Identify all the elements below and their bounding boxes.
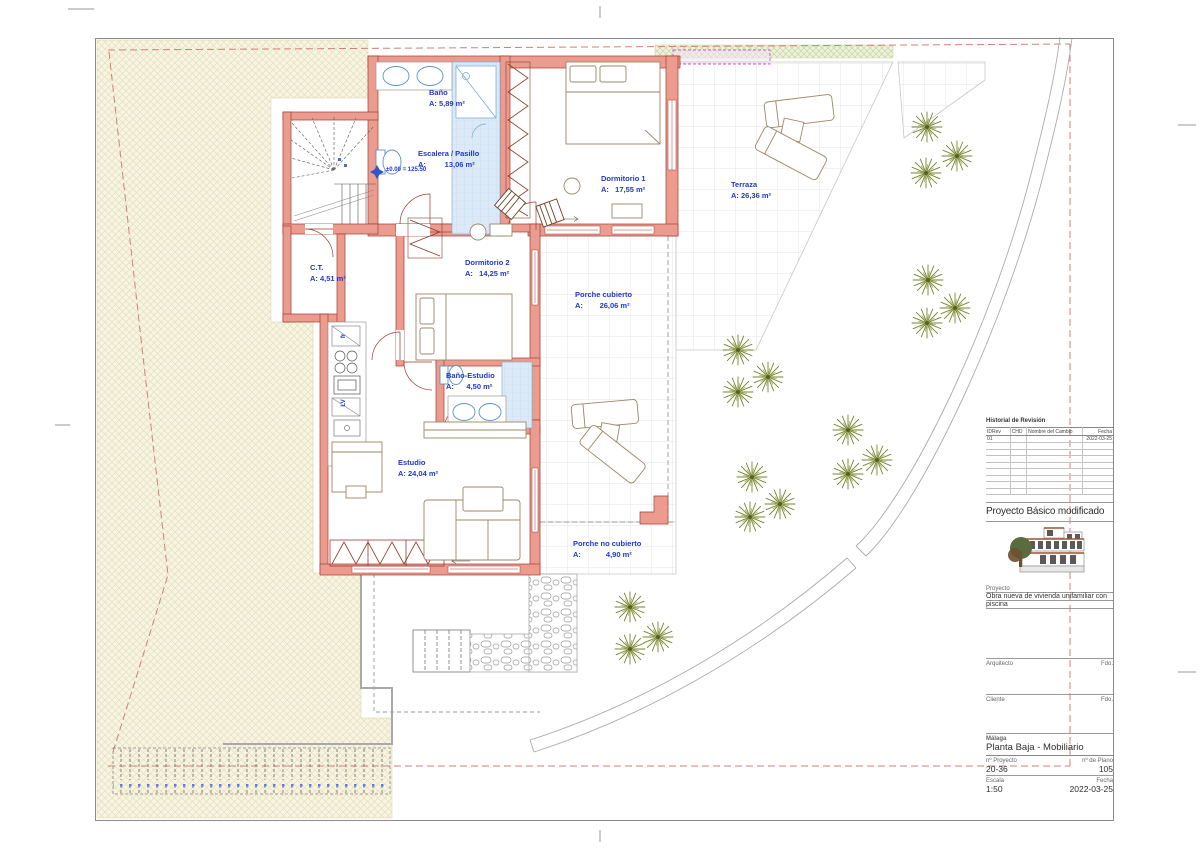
revision-table: IDRev CHD Nombre del Cambio Fecha 01 202… xyxy=(986,427,1113,495)
title-block: Historial de Revisión IDRev CHD Nombre d… xyxy=(986,418,1113,812)
room-label-terraza: TerrazaA: 26,36 m² xyxy=(731,180,771,202)
building-elevation-thumbnail xyxy=(1006,526,1090,580)
architect-label: Arquitecto xyxy=(986,661,1013,667)
date-value: 2022-03-25 xyxy=(1070,784,1113,794)
revision-history-title: Historial de Revisión xyxy=(986,418,1113,424)
room-label-porche-no-cubierto: Porche no cubiertoA: 4,90 m² xyxy=(573,539,641,561)
drawing-sheet: BañoA: 5,89 m² Escalera / PasilloA: 13,0… xyxy=(0,0,1200,849)
client-signature-label: Fdo. xyxy=(1101,697,1113,703)
rev-col-chd: CHD xyxy=(1010,428,1027,436)
scale-value: 1:50 xyxy=(986,784,1003,794)
staircase xyxy=(291,116,376,224)
architect-signature-label: Fdo. xyxy=(1101,661,1113,667)
rev-col-fecha: Fecha xyxy=(1083,428,1114,436)
room-label-dormitorio2: Dormitorio 2A: 14,25 m² xyxy=(465,258,510,280)
project-no: 20-36 xyxy=(986,764,1008,774)
room-label-bano-estudio: Baño-EstudioA: 4,50 m² xyxy=(446,371,495,393)
project-desc-line2: piscina xyxy=(986,601,1113,609)
project-label: Proyecto xyxy=(986,586,1113,593)
room-label-ct: C.T.A: 4,51 m² xyxy=(310,263,346,285)
stone-path xyxy=(470,574,577,672)
project-desc-line1: Obra nueva de vivienda unifamiliar con xyxy=(986,593,1113,601)
garden-steps xyxy=(413,630,470,672)
rev-col-nombre: Nombre del Cambio xyxy=(1027,428,1083,436)
sheet-name: Planta Baja - Mobiliario xyxy=(986,742,1113,756)
room-label-estudio: EstudioA: 24,04 m² xyxy=(398,458,438,480)
room-label-porche-cubierto: Porche cubiertoA: 26,06 m² xyxy=(575,290,632,312)
room-label-escalera: Escalera / PasilloA: 13,06 m² xyxy=(418,149,479,171)
room-label-dormitorio1: Dormitorio 1A: 17,55 m² xyxy=(601,174,646,196)
sheet-name-section: Málaga Planta Baja - Mobiliario nº Proye… xyxy=(986,733,1113,794)
plan-no: 105 xyxy=(1099,764,1113,774)
level-marker-text: ±0.00 = 125.50 xyxy=(386,167,426,173)
dishwasher-label: LV xyxy=(341,397,347,409)
rev-col-idrev: IDRev xyxy=(986,428,1010,436)
fridge-label: fr xyxy=(341,330,347,342)
architect-signature-row: Arquitecto Fdo. xyxy=(986,658,1113,667)
client-signature-row: Cliente Fdo. xyxy=(986,694,1113,703)
client-label: Cliente xyxy=(986,697,1005,703)
project-title: Proyecto Básico modificado xyxy=(986,502,1113,522)
revision-row: 01 2022-03-25 xyxy=(986,436,1113,443)
project-section: Proyecto Obra nueva de vivienda unifamil… xyxy=(986,586,1113,609)
room-label-bano: BañoA: 5,89 m² xyxy=(429,88,465,110)
